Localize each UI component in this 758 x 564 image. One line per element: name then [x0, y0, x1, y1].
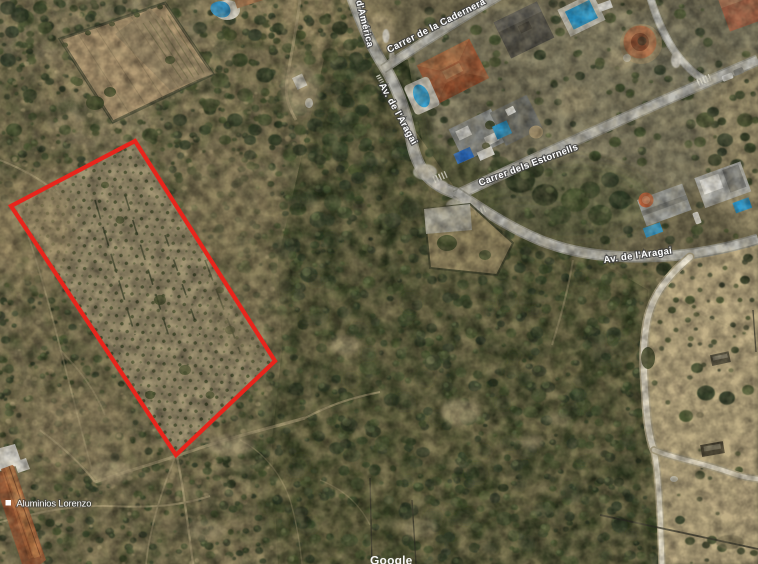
svg-text:Google: Google: [370, 554, 413, 564]
svg-text:Aluminios Lorenzo: Aluminios Lorenzo: [17, 499, 92, 509]
